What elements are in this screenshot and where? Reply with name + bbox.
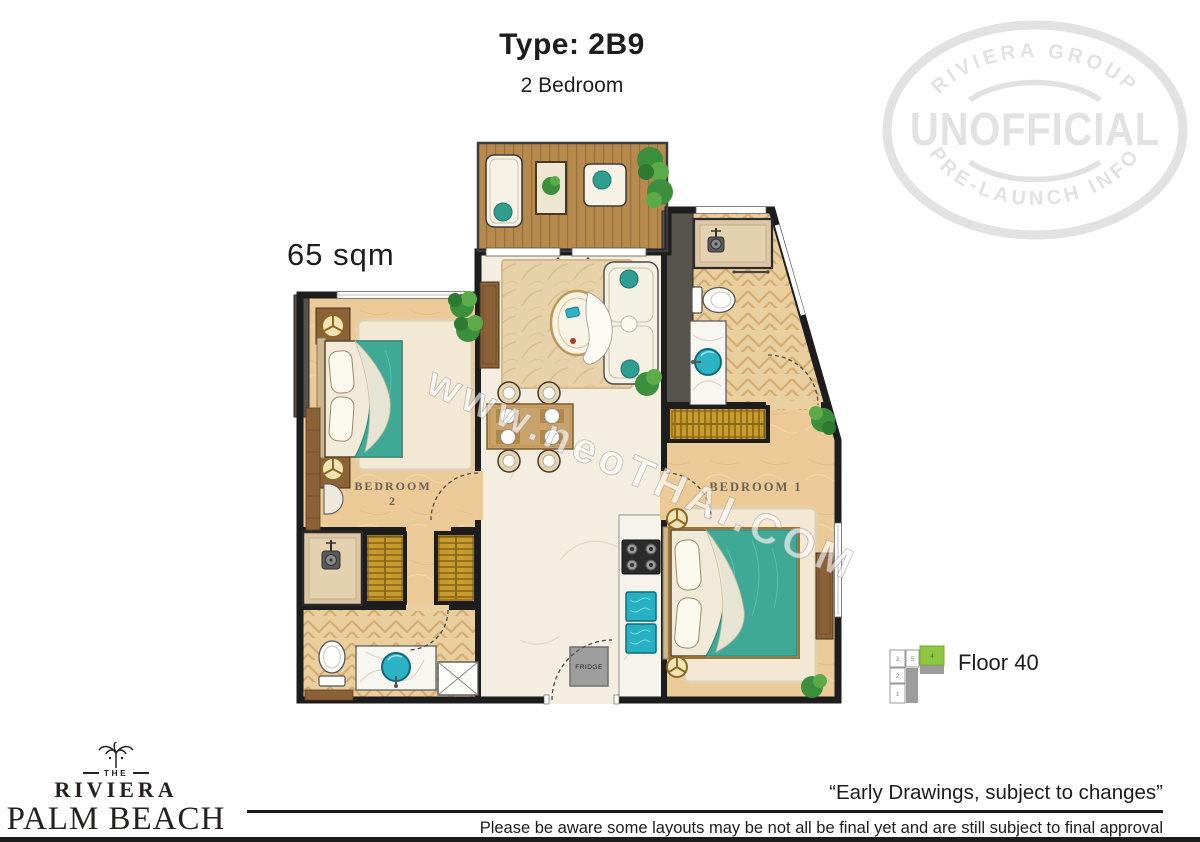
page: Type: 2B9 2 Bedroom 65 sqm RIVIERA GROUP… [0, 0, 1200, 842]
stamp-arc-decor-top [970, 82, 1100, 100]
kitchen-sink [626, 624, 656, 653]
sliding-door-pane-2 [572, 248, 646, 256]
bottom-border [0, 837, 1200, 842]
floor-number-label: Floor 40 [958, 650, 1039, 676]
pillow [328, 350, 355, 394]
bathroom1-window [696, 207, 766, 214]
logo-riviera: RIVIERA [2, 778, 230, 801]
pillow [674, 597, 702, 649]
living-furniture [480, 260, 658, 388]
entrance-jamb-left [544, 695, 549, 704]
toilet [692, 287, 702, 313]
bedroom2-door-gap [473, 471, 483, 520]
pillow [674, 539, 701, 591]
stamp-main-text: UNOFFICIAL [910, 103, 1160, 155]
sliding-door-pane-1 [486, 248, 560, 256]
brand-logo: THE RIVIERA PALM BEACH WONGAMAT [2, 742, 230, 842]
stamp-arc-decor-bottom [970, 162, 1100, 180]
lounger-pillow [494, 203, 512, 221]
entrance-gap [547, 696, 616, 704]
logo-palm-beach: PALM BEACH [2, 803, 230, 836]
threshold [305, 690, 353, 700]
bedroom2-label-line1: BEDROOM [354, 479, 431, 493]
floor-plan: FRIDGE BEDROOM 2 [280, 130, 860, 720]
unofficial-stamp: RIVIERA GROUP PRE-LAUNCH INFO UNOFFICIAL [875, 12, 1195, 252]
early-drawings-note: “Early Drawings, subject to changes” [600, 781, 1163, 805]
building-corridor [920, 665, 944, 674]
separator-line [247, 810, 1163, 813]
bedroom2-label-line2: 2 [389, 494, 397, 508]
palm-ornament-icon [94, 742, 138, 768]
stamp-arc-top-text: RIVIERA GROUP [927, 40, 1142, 99]
entrance-jamb-right [614, 695, 619, 704]
fridge-label: FRIDGE [575, 664, 603, 671]
disclaimer-text: Please be aware some layouts may be not … [400, 819, 1163, 838]
svg-text:RIVIERA GROUP: RIVIERA GROUP [927, 40, 1142, 99]
kitchen-sink [626, 592, 656, 621]
sofa-pillow [621, 360, 639, 378]
wall-closet [306, 408, 320, 530]
page-title: Type: 2B9 [452, 28, 692, 62]
sofa-pillow [620, 270, 638, 288]
pillow [328, 396, 354, 441]
floor-indicator: 3 5 4 2 1 [888, 642, 952, 706]
dressing-area [303, 532, 476, 605]
page-subtitle: 2 Bedroom [452, 74, 692, 98]
